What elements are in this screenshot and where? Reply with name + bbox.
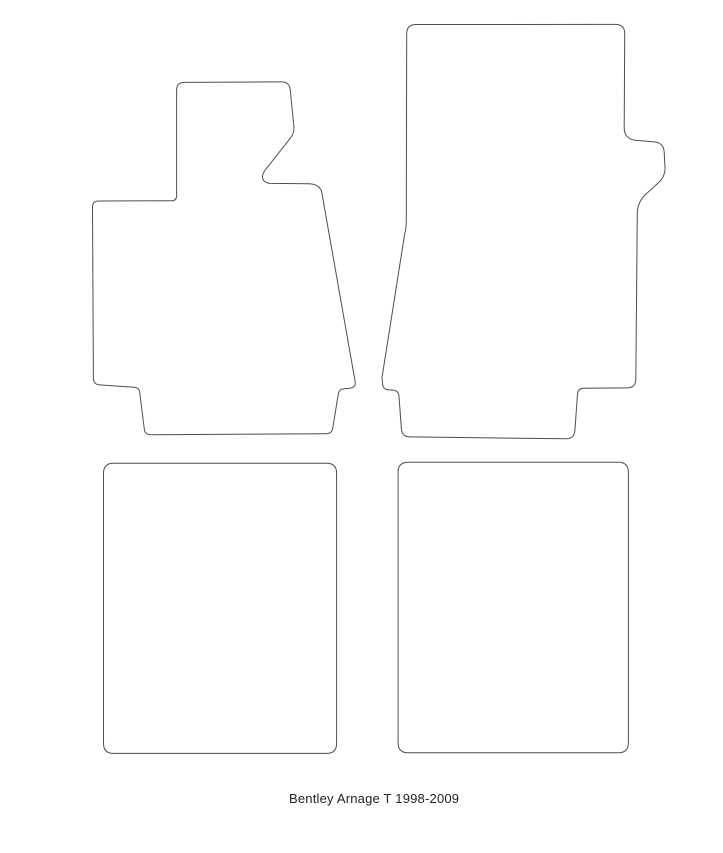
rear-left-mat-outline [104,463,337,753]
front-driver-mat-outline [92,82,355,435]
rear-right-mat-outline [398,462,628,753]
mat-template-sheet: Bentley Arnage T 1998-2009 [0,0,723,853]
mat-outlines-figure [0,0,723,853]
caption: Bentley Arnage T 1998-2009 [289,791,459,806]
front-passenger-mat-outline [382,24,665,438]
